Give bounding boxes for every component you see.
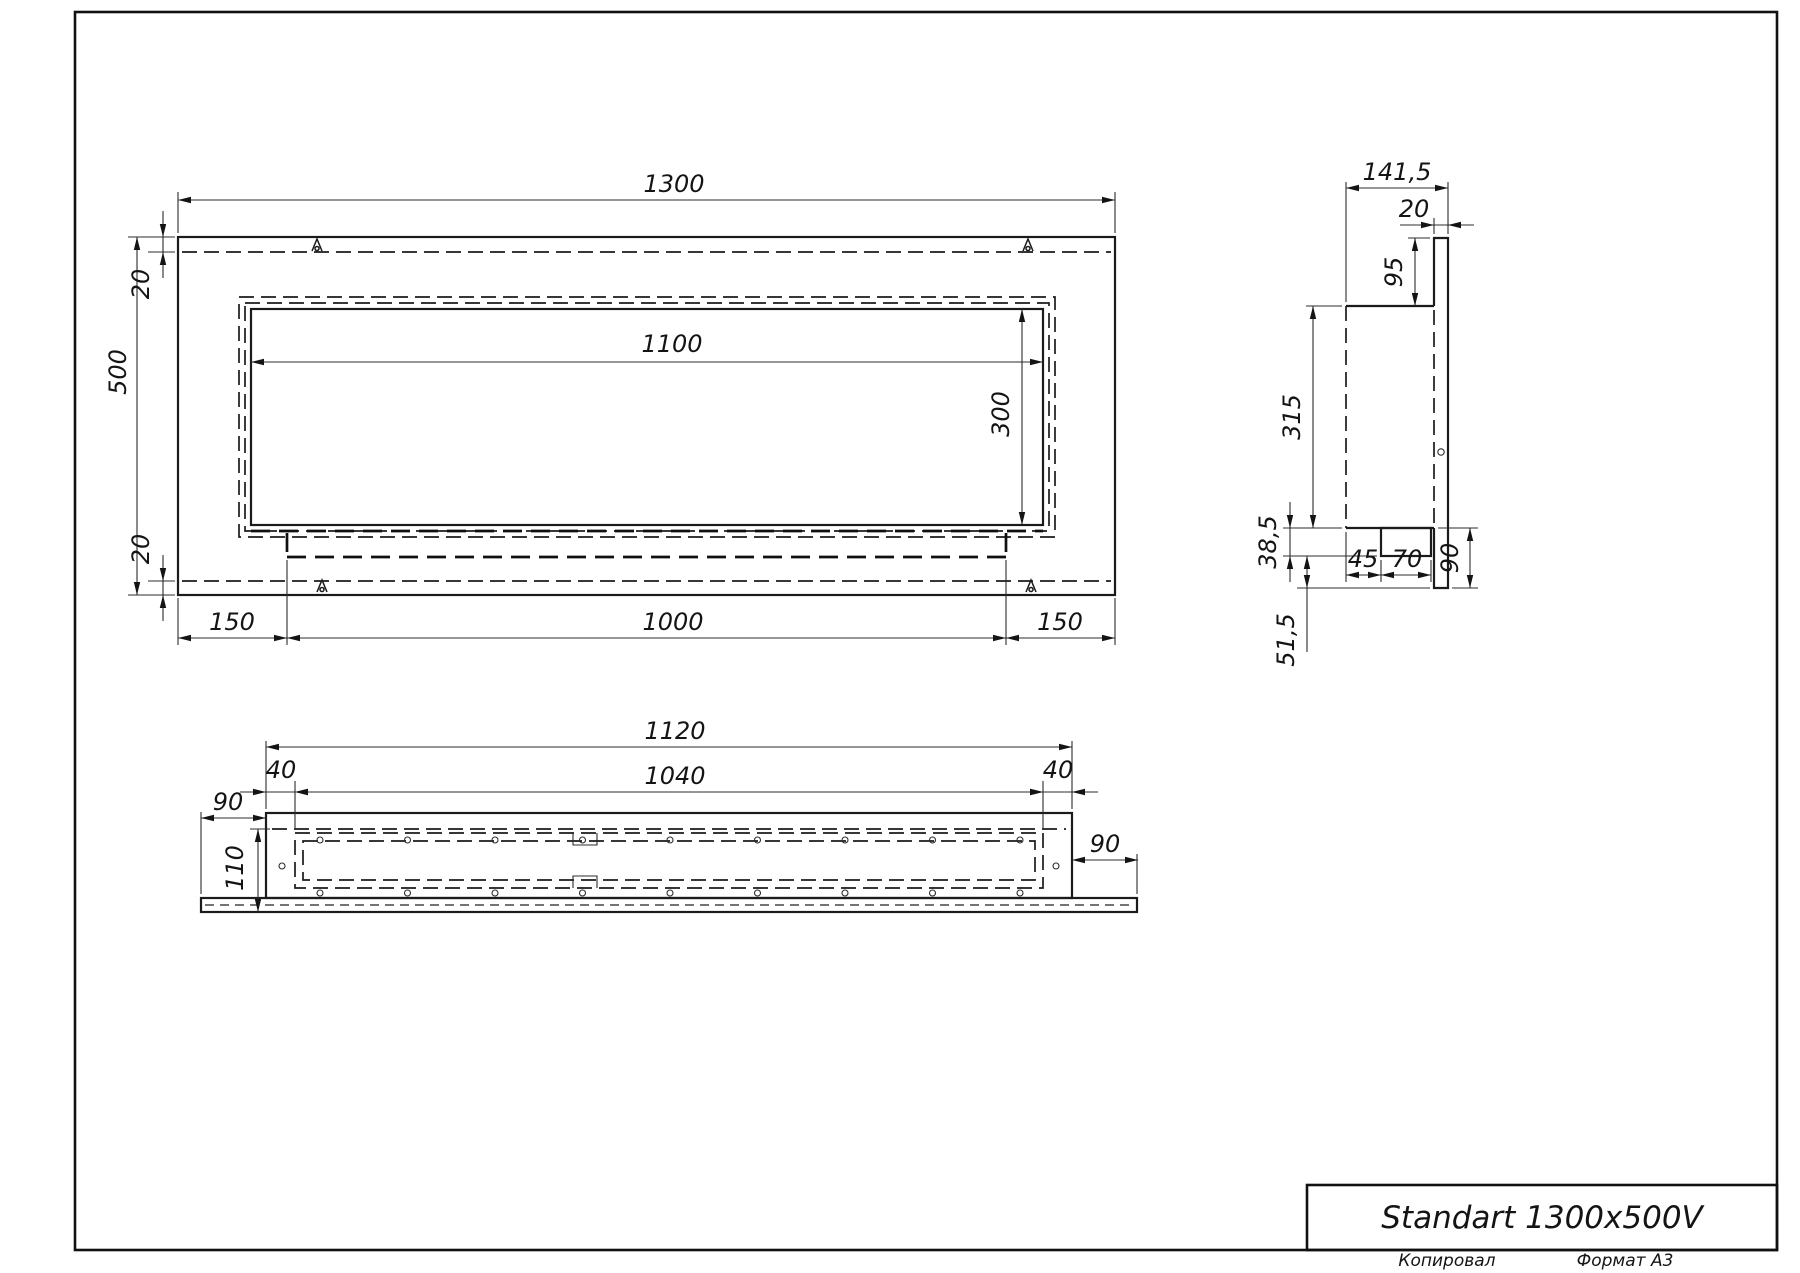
arrowhead <box>1287 515 1293 528</box>
arrowhead <box>178 635 191 641</box>
arrowhead <box>993 635 1006 641</box>
arrowhead <box>1006 635 1019 641</box>
keyhole-slot-mark <box>320 588 324 592</box>
arrowhead <box>160 568 166 581</box>
dim-label: 110 <box>221 845 249 891</box>
arrowhead <box>1059 744 1072 750</box>
arrowhead <box>1412 238 1418 251</box>
dim-label: 1100 <box>641 330 702 358</box>
screw-hole <box>317 837 323 843</box>
screw-hole <box>755 890 761 896</box>
arrowhead <box>160 595 166 608</box>
arrowhead <box>1102 635 1115 641</box>
dim-label: 95 <box>1380 257 1408 288</box>
title-block: Standart 1300x500VКопировалФормат А3 <box>1307 1185 1777 1271</box>
dim-label: 300 <box>987 391 1015 437</box>
arrowhead <box>160 252 166 265</box>
arrowhead <box>1310 306 1316 319</box>
dim-label: 90 <box>1436 543 1464 574</box>
arrowhead <box>1125 857 1138 863</box>
dim-label: 20 <box>127 269 155 300</box>
arrowhead <box>1030 789 1043 795</box>
screw-hole <box>580 837 586 843</box>
front-view <box>128 192 1115 645</box>
dim-label: Копировал <box>1398 1251 1495 1271</box>
front-panel-outline <box>1434 238 1448 588</box>
arrowhead <box>1287 556 1293 569</box>
screw-hole <box>1017 837 1023 843</box>
arrowhead <box>1304 575 1310 588</box>
arrowhead <box>1072 857 1085 863</box>
keyhole-slot-mark <box>315 247 319 251</box>
dim-label: 20 <box>1399 195 1430 223</box>
dim-label: 500 <box>104 349 132 395</box>
arrowhead <box>178 197 191 203</box>
drawing-border <box>75 12 1777 1250</box>
dim-label: 45 <box>1348 545 1379 573</box>
screw-hole <box>667 890 673 896</box>
arrowhead <box>1304 556 1310 569</box>
keyhole-slot-mark <box>1023 239 1033 251</box>
arrowhead <box>1467 528 1473 541</box>
dim-label: 1000 <box>642 608 703 636</box>
screw-hole <box>930 837 936 843</box>
arrowhead <box>1019 512 1025 525</box>
dim-label: 315 <box>1278 394 1306 440</box>
arrowhead <box>1102 197 1115 203</box>
side-view-dimensions: 141,5209531538,551,5904570 <box>1254 158 1474 667</box>
dim-label: 90 <box>213 788 244 816</box>
screw-hole <box>930 890 936 896</box>
arrowhead <box>1346 185 1359 191</box>
front-view-dimensions: 1300500202011003001501000150 <box>104 170 1115 641</box>
arrowhead <box>134 582 140 595</box>
dim-label: 1300 <box>643 170 704 198</box>
screw-hole <box>317 890 323 896</box>
arrowhead <box>1448 222 1461 228</box>
arrowhead <box>134 237 140 250</box>
arrowhead <box>1412 293 1418 306</box>
dim-label: 38,5 <box>1254 515 1282 568</box>
opening-hidden-edge <box>303 841 1035 880</box>
screw-hole <box>492 890 498 896</box>
arrowhead <box>295 789 308 795</box>
screw-hole <box>1017 890 1023 896</box>
dim-label: 51,5 <box>1272 613 1300 666</box>
arrowhead <box>1435 185 1448 191</box>
screw-hole <box>580 890 586 896</box>
arrowhead <box>266 744 279 750</box>
box-outline <box>266 813 1072 898</box>
screw-hole <box>842 890 848 896</box>
screw-hole <box>405 837 411 843</box>
arrowhead <box>1019 309 1025 322</box>
arrowhead <box>255 829 261 842</box>
screw-hole <box>492 837 498 843</box>
bottom-view-dimensions: 1120104040409011090 <box>201 717 1138 912</box>
side-view <box>1283 182 1478 588</box>
front-outer-outline <box>178 237 1115 595</box>
arrowhead <box>287 635 300 641</box>
dim-label: 90 <box>1090 830 1121 858</box>
dim-label: 40 <box>1043 756 1074 784</box>
center-notch <box>573 876 597 888</box>
panel-hole <box>1438 449 1444 455</box>
arrowhead <box>253 815 266 821</box>
keyhole-slot-mark <box>1029 588 1033 592</box>
screw-hole <box>279 863 285 869</box>
keyhole-slot-mark <box>1026 247 1030 251</box>
arrowhead <box>1030 359 1043 365</box>
dim-label: 141,5 <box>1363 158 1432 186</box>
arrowhead <box>253 789 266 795</box>
arrowhead <box>1310 515 1316 528</box>
arrowhead <box>1467 575 1473 588</box>
screw-hole <box>842 837 848 843</box>
dim-label: 150 <box>209 608 255 636</box>
keyhole-slot-mark <box>312 239 322 251</box>
dim-label: Формат А3 <box>1577 1251 1674 1271</box>
dim-label: 150 <box>1037 608 1083 636</box>
arrowhead <box>1072 789 1085 795</box>
arrowhead <box>251 359 264 365</box>
screw-hole <box>405 890 411 896</box>
screw-hole <box>667 837 673 843</box>
dim-label: 40 <box>266 756 297 784</box>
drawing-sheet: Standart 1300x500VКопировалФормат А31300… <box>0 0 1800 1273</box>
sheet-frame <box>75 12 1777 1250</box>
screw-hole <box>1053 863 1059 869</box>
arrowhead <box>274 635 287 641</box>
dim-label: 70 <box>1392 545 1423 573</box>
dim-label: 20 <box>127 534 155 565</box>
dim-label: 1120 <box>644 717 705 745</box>
arrowhead <box>160 224 166 237</box>
dim-label: Standart 1300x500V <box>1381 1200 1705 1236</box>
dim-label: 1040 <box>644 762 705 790</box>
technical-drawing: Standart 1300x500VКопировалФормат А31300… <box>0 0 1800 1273</box>
screw-hole <box>755 837 761 843</box>
